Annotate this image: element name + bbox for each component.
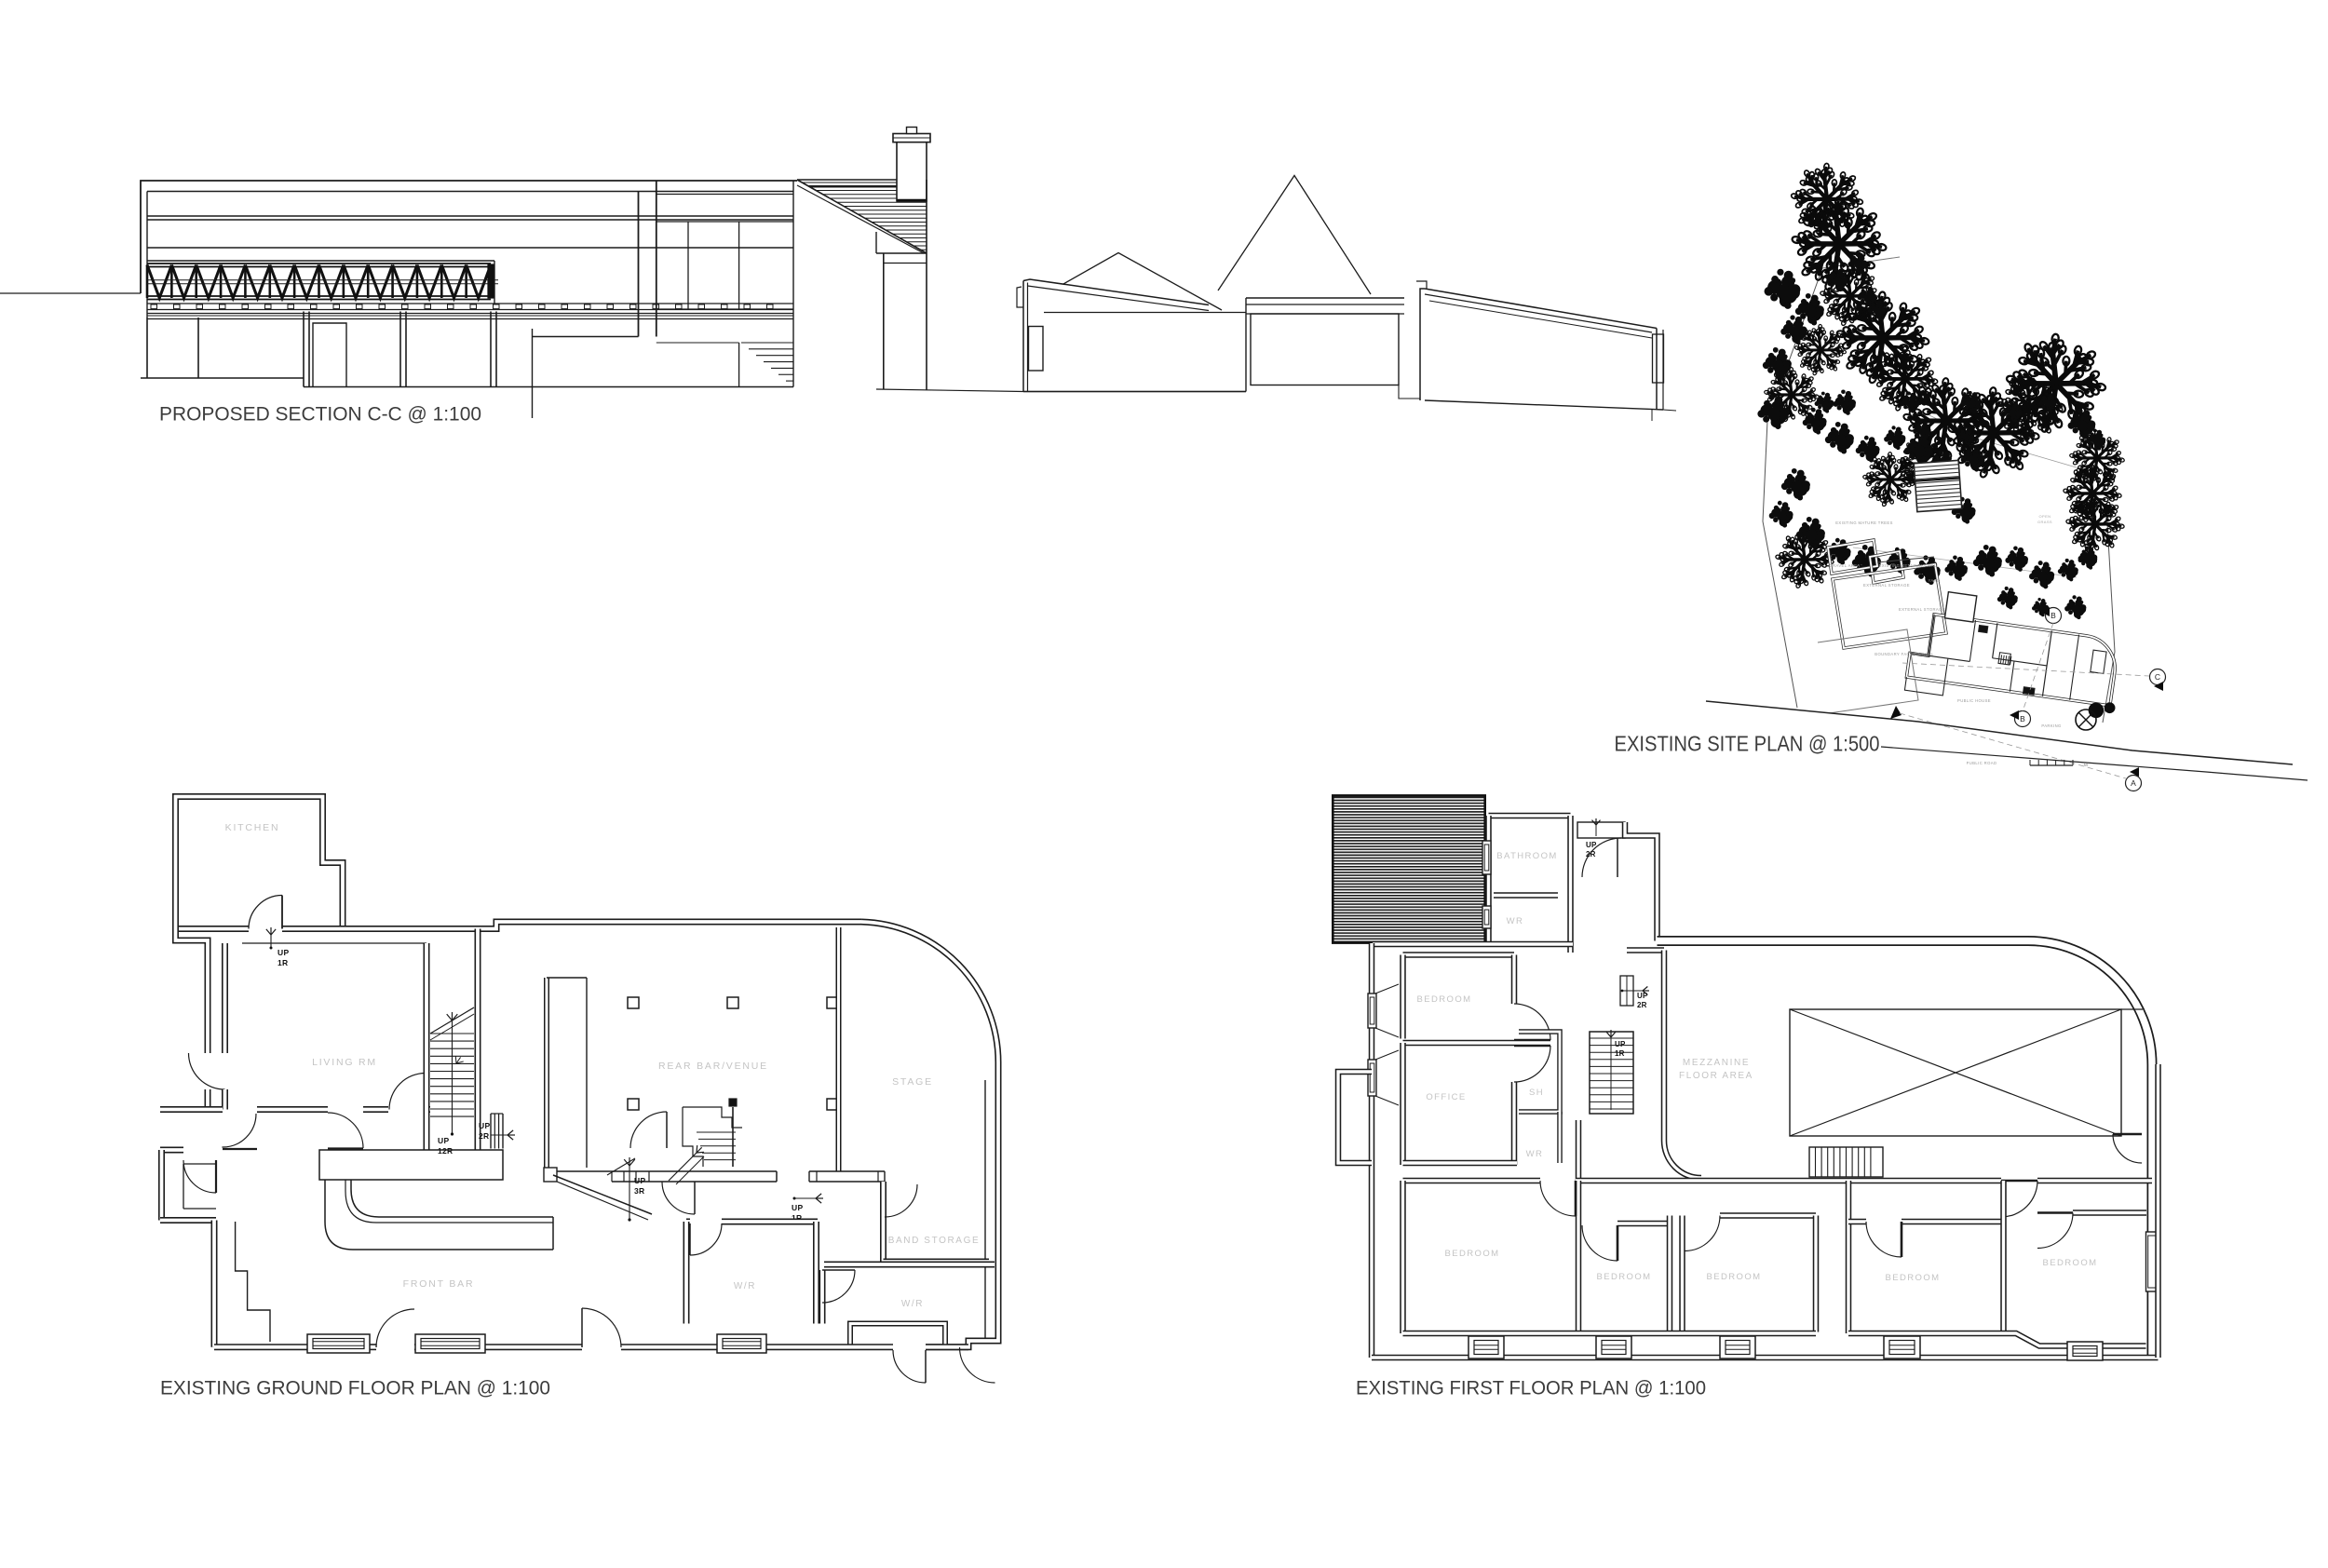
svg-text:EXISTING RETAINING WALL: EXISTING RETAINING WALL [1879,563,1940,568]
svg-text:BATHROOM: BATHROOM [1496,851,1557,861]
svg-text:OPEN: OPEN [2039,514,2051,519]
svg-text:EXTERNAL STORAGE: EXTERNAL STORAGE [1863,583,1910,588]
svg-text:BEDROOM: BEDROOM [1886,1273,1941,1283]
svg-text:PARKING: PARKING [2041,723,2061,728]
svg-text:BEDROOM: BEDROOM [1445,1249,1500,1259]
svg-text:BEDROOM: BEDROOM [1707,1272,1762,1282]
svg-text:2R: 2R [479,1131,489,1141]
svg-text:FLOOR AREA: FLOOR AREA [1679,1071,1753,1081]
svg-text:BAND STORAGE: BAND STORAGE [888,1236,980,1246]
svg-text:BEDROOM: BEDROOM [1597,1272,1652,1282]
svg-text:1R: 1R [277,958,288,967]
svg-text:FRONT BAR: FRONT BAR [403,1278,475,1290]
svg-text:B: B [2020,714,2025,723]
svg-text:BEDROOM: BEDROOM [2043,1258,2098,1268]
svg-text:UP: UP [792,1203,803,1212]
svg-text:12R: 12R [438,1146,453,1156]
svg-text:MEZZANINE: MEZZANINE [1683,1058,1750,1068]
svg-text:UP: UP [1637,992,1648,1000]
svg-text:PUBLIC ROAD: PUBLIC ROAD [1967,761,1997,765]
svg-text:PROPOSED SECTION C-C @ 1:100: PROPOSED SECTION C-C @ 1:100 [159,403,481,426]
svg-text:2R: 2R [1637,1001,1647,1009]
svg-text:BOUNDARY FACE OF WALL: BOUNDARY FACE OF WALL [1875,652,1934,656]
svg-text:OFFICE: OFFICE [1426,1092,1466,1102]
svg-text:3R: 3R [634,1186,644,1196]
svg-text:UP: UP [1615,1040,1626,1048]
svg-text:GRASS: GRASS [2037,520,2052,524]
svg-text:EXISTING GROUND FLOOR PLAN @ 1: EXISTING GROUND FLOOR PLAN @ 1:100 [160,1378,550,1399]
svg-text:W/R: W/R [734,1281,756,1291]
svg-text:GRAVEL AREA: GRAVEL AREA [1829,563,1860,568]
svg-text:W/R: W/R [901,1299,924,1309]
svg-text:EXISTING FIRST FLOOR PLAN @ 1:: EXISTING FIRST FLOOR PLAN @ 1:100 [1356,1378,1706,1399]
svg-text:1R: 1R [1615,1049,1625,1058]
svg-text:B: B [2051,611,2056,620]
svg-text:A: A [2131,778,2136,788]
svg-text:UP: UP [479,1121,490,1130]
svg-text:PUBLIC HOUSE: PUBLIC HOUSE [1957,698,1991,703]
svg-text:WR: WR [1507,916,1524,926]
svg-text:EXISTING SITE PLAN @ 1:500: EXISTING SITE PLAN @ 1:500 [1615,732,1880,756]
svg-text:UP: UP [438,1136,449,1145]
svg-text:EXISTING MATURE TREES: EXISTING MATURE TREES [1835,520,1893,525]
svg-text:SH: SH [1529,1088,1544,1098]
svg-text:LIVING RM: LIVING RM [312,1057,377,1068]
svg-text:KITCHEN: KITCHEN [225,822,280,833]
svg-text:EXTERNAL STORAGE: EXTERNAL STORAGE [1899,607,1945,612]
svg-text:M: M [2084,763,2088,767]
svg-text:REAR BAR/VENUE: REAR BAR/VENUE [658,1061,768,1072]
svg-text:UP: UP [634,1176,645,1185]
svg-text:YARD: YARD [1929,578,1941,583]
svg-text:BEDROOM: BEDROOM [1417,994,1472,1005]
svg-text:STAGE: STAGE [892,1076,933,1088]
svg-text:UP: UP [277,948,289,957]
svg-text:WR: WR [1526,1149,1544,1159]
svg-text:C: C [2155,672,2160,682]
